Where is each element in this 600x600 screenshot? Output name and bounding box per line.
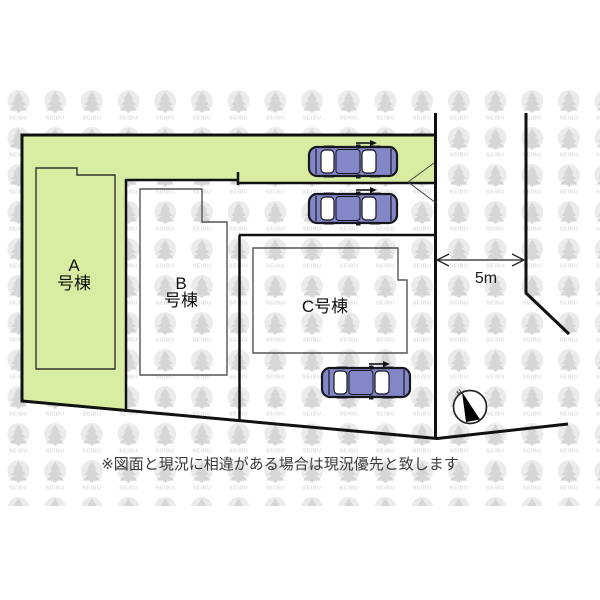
building-a-label-line1: A xyxy=(68,256,80,275)
building-c-label: C号棟 xyxy=(302,297,348,316)
dimension-5m: 5m xyxy=(437,254,524,287)
disclaimer-text: ※図面と現況に相違がある場合は現況優先と致します xyxy=(0,453,600,474)
car-3-icon xyxy=(322,361,410,400)
road-edge-far xyxy=(526,113,569,334)
compass: N xyxy=(454,389,487,424)
site-plan-image: SEIBU xyxy=(0,0,600,600)
plan-drawing: A 号棟 B 号棟 C号棟 5m N xyxy=(0,0,600,600)
building-a-label-line2: 号棟 xyxy=(57,274,91,293)
dimension-label: 5m xyxy=(475,270,497,287)
car-2-icon xyxy=(309,187,397,226)
building-b-label-line2: 号棟 xyxy=(164,291,198,310)
